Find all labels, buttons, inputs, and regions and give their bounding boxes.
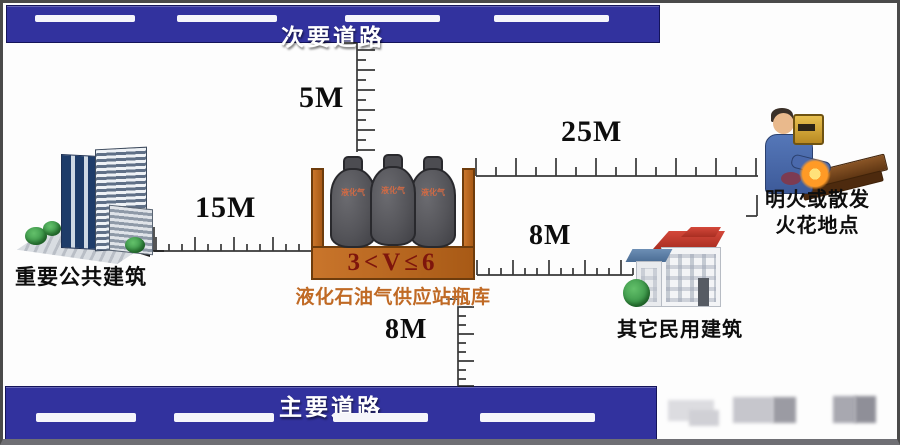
watermark-blur <box>855 396 876 423</box>
building-door <box>698 278 709 306</box>
lane-dash <box>333 413 428 422</box>
mask-window <box>798 124 815 131</box>
cylinder-label: 液化气 <box>370 185 416 196</box>
welder-illustration <box>753 106 888 198</box>
watermark-blur <box>773 397 796 423</box>
tower-left <box>61 154 99 250</box>
lane-dash <box>480 413 595 422</box>
welder-glove <box>781 172 801 185</box>
safety-distance-diagram: 次要道路 主要道路 5M 15M 25M 8M 8M 3<V≤6 <box>0 0 900 445</box>
dimension-5m: 5M <box>299 81 344 115</box>
station-caption: 液化石油气供应站瓶库 <box>288 282 498 309</box>
main-road: 主要道路 <box>5 386 657 440</box>
tree-icon <box>623 279 650 307</box>
red-roof <box>681 227 721 237</box>
ruler-8m-building <box>471 253 639 279</box>
open-flame-caption: 明火或散发 火花地点 <box>755 187 880 239</box>
public-building-illustration <box>17 145 152 265</box>
open-flame-caption-line1: 明火或散发 <box>755 187 880 213</box>
ruler-8m-road <box>444 295 484 391</box>
secondary-road: 次要道路 <box>6 5 660 43</box>
ruler-5m <box>338 40 382 156</box>
welder-head <box>773 113 794 134</box>
public-building-caption: 重要公共建筑 <box>11 261 151 291</box>
gas-cylinder-icon: 液化气 <box>370 153 420 248</box>
secondary-road-label: 次要道路 <box>7 18 659 52</box>
watermark-blur <box>833 396 856 423</box>
dimension-25m: 25M <box>561 115 622 149</box>
watermark-blur <box>733 397 773 423</box>
lane-dash <box>174 413 274 422</box>
civil-building-caption: 其它民用建筑 <box>615 313 745 342</box>
dimension-8m-road: 8M <box>385 314 427 346</box>
station-volume-label: 3<V≤6 <box>313 249 473 277</box>
lane-dash <box>36 413 136 422</box>
civil-building-illustration <box>623 227 728 312</box>
open-flame-caption-line2: 火花地点 <box>755 213 880 239</box>
welding-mask <box>793 114 824 145</box>
tree-icon <box>125 237 145 253</box>
tree-icon <box>43 221 61 236</box>
building-wall <box>661 247 721 307</box>
cylinder-body <box>370 166 416 246</box>
sparks-flame-icon <box>799 158 831 190</box>
ruler-25m <box>468 152 766 180</box>
watermark-blur <box>689 410 719 426</box>
station-pit-base: 3<V≤6 <box>311 246 475 280</box>
dimension-15m: 15M <box>195 191 256 225</box>
dimension-8m-building: 8M <box>529 220 571 252</box>
